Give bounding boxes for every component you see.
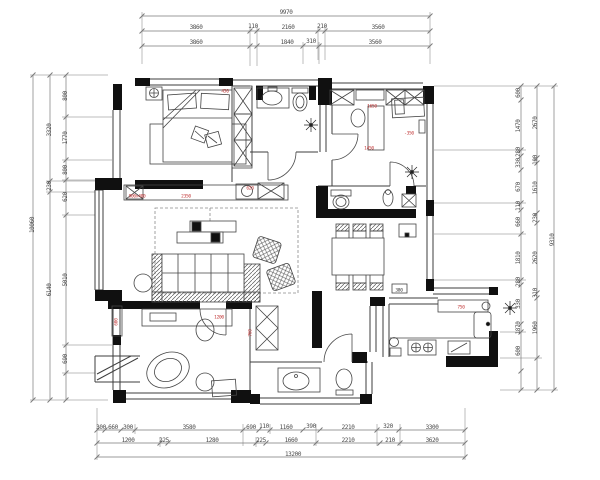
bathroom-top-fixtures xyxy=(257,87,308,111)
dim-label: 1470 xyxy=(516,120,522,133)
kitchen-fixtures xyxy=(390,284,492,356)
dim-label: 2620 xyxy=(533,252,539,265)
dim-label: 3860 xyxy=(190,40,203,46)
dim-label: 230 xyxy=(533,213,539,223)
dim-label: 1660 xyxy=(285,438,298,444)
annotation-label: 1450 xyxy=(364,147,374,152)
dim-label: 2670 xyxy=(533,117,539,130)
annotation-label: 750 xyxy=(457,306,464,311)
dim-label: 3560 xyxy=(369,40,382,46)
annotation-label: 620 xyxy=(246,187,253,192)
dim-label: 670 xyxy=(516,182,522,192)
dim-label: 3620 xyxy=(426,438,439,444)
dim-label: 660 xyxy=(516,217,522,227)
dim-label: 1610 xyxy=(533,182,539,195)
dim-label: 300 xyxy=(96,425,106,431)
dim-label: 280 xyxy=(516,147,522,157)
dim-label: 210 xyxy=(317,24,327,30)
dim-label: 2160 xyxy=(282,25,295,31)
dim-label: 330 xyxy=(516,158,522,168)
dim-label: 10060 xyxy=(30,217,36,233)
dim-label: 6140 xyxy=(47,284,53,297)
dim-label: 800 xyxy=(63,91,69,101)
annotation-label: 1650 xyxy=(367,105,377,110)
bedroom-1-furniture xyxy=(146,87,246,164)
dim-label: 2210 xyxy=(342,425,355,431)
dim-label: 1280 xyxy=(206,438,219,444)
dim-label: 1200 xyxy=(122,438,135,444)
dim-label: 5010 xyxy=(63,274,69,287)
study-furniture xyxy=(330,90,425,150)
dim-label: 800 xyxy=(63,165,69,175)
dim-label: 1870 xyxy=(516,322,522,335)
floor-plan-stage: 9970386011021602103560386018403103560300… xyxy=(0,0,600,480)
walls xyxy=(95,78,498,404)
dim-label: 690 xyxy=(63,354,69,364)
entry-bathroom-fixtures xyxy=(278,368,353,395)
dim-label: 110 xyxy=(516,201,522,211)
dim-label: 3300 xyxy=(426,425,439,431)
dim-label: 620 xyxy=(63,192,69,202)
annotation-label: 2350 xyxy=(181,195,191,200)
dim-label: 9310 xyxy=(550,234,556,247)
dim-label: 100 xyxy=(533,155,539,165)
dim-label: 3320 xyxy=(47,124,53,137)
dim-label: 280 xyxy=(516,277,522,287)
dim-label: 3860 xyxy=(190,25,203,31)
living-furniture xyxy=(124,183,296,302)
dim-label: 690 xyxy=(246,425,256,431)
annotation-label: -350 xyxy=(404,132,414,137)
annotation-label: 760 xyxy=(249,329,254,336)
annotation-label: 1200 xyxy=(214,316,224,321)
dim-label: 1160 xyxy=(280,425,293,431)
dim-label: 225 xyxy=(256,438,266,444)
dim-label: 330 xyxy=(516,299,522,309)
dim-label: 3580 xyxy=(183,425,196,431)
dim-label: 110 xyxy=(248,24,258,30)
dim-label: 1960 xyxy=(533,322,539,335)
bedroom-3-furniture xyxy=(112,306,278,397)
dim-label: 110 xyxy=(259,424,269,430)
dining-set xyxy=(332,224,384,290)
dim-label: 300 xyxy=(123,425,133,431)
dim-label: 2210 xyxy=(342,438,355,444)
wardrobe-bedroom-1 xyxy=(232,86,252,168)
annotation-label: 900x400 xyxy=(129,195,146,200)
dim-label: 1810 xyxy=(516,252,522,265)
annotation-label: 450 xyxy=(221,90,228,95)
dim-label: 320 xyxy=(383,424,393,430)
dim-label: 225 xyxy=(159,438,169,444)
dim-label: 9970 xyxy=(280,10,293,16)
annotation-label: 380 xyxy=(395,289,402,294)
dim-label: 13200 xyxy=(285,452,301,458)
annotation-label: 600 xyxy=(115,318,120,325)
dim-label: 1840 xyxy=(281,40,294,46)
dim-label: 210 xyxy=(385,438,395,444)
dim-label: 1770 xyxy=(63,132,69,145)
dim-label: 390 xyxy=(306,424,316,430)
dimension-scaffold xyxy=(30,12,558,460)
dim-label: 660 xyxy=(108,425,118,431)
floor-plan-canvas xyxy=(0,0,600,480)
dim-label: 310 xyxy=(306,39,316,45)
dim-label: 600 xyxy=(516,88,522,98)
dim-label: 600 xyxy=(516,346,522,356)
dim-label: 230 xyxy=(47,181,53,191)
dim-label: 310 xyxy=(533,288,539,298)
dim-label: 3560 xyxy=(372,25,385,31)
